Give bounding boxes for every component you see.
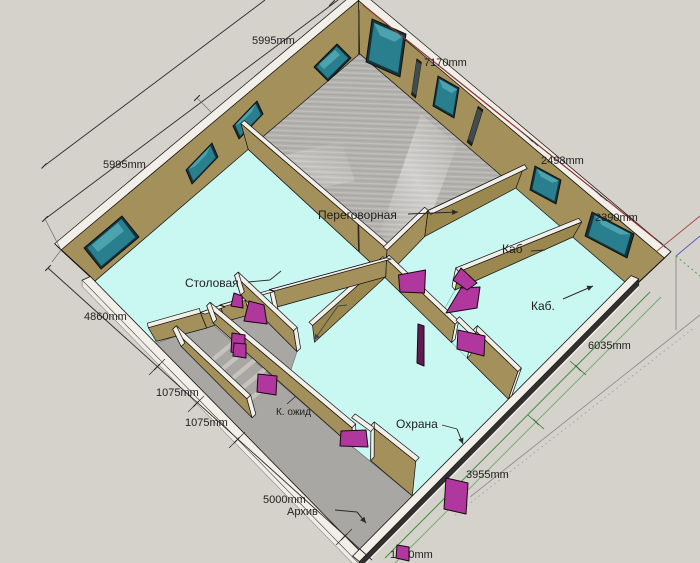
svg-text:К. ожид: К. ожид (276, 407, 311, 418)
svg-text:Охрана: Охрана (396, 417, 438, 431)
svg-text:1075mm: 1075mm (185, 417, 228, 429)
svg-text:2498mm: 2498mm (541, 155, 584, 167)
svg-text:2390mm: 2390mm (595, 212, 638, 224)
svg-text:5995mm: 5995mm (252, 35, 295, 47)
svg-text:Каб.: Каб. (531, 299, 555, 313)
svg-text:6035mm: 6035mm (588, 340, 631, 352)
svg-text:Столовая: Столовая (185, 276, 239, 290)
svg-text:Переговорная: Переговорная (318, 208, 397, 222)
svg-text:Архив: Архив (287, 506, 318, 518)
svg-text:Каб: Каб (502, 242, 523, 256)
svg-text:4860mm: 4860mm (84, 311, 127, 323)
svg-text:7170mm: 7170mm (424, 57, 467, 69)
svg-text:1075mm: 1075mm (156, 387, 199, 399)
svg-text:5995mm: 5995mm (103, 159, 146, 171)
svg-text:5000mm: 5000mm (263, 494, 306, 506)
svg-text:3955mm: 3955mm (466, 469, 509, 481)
